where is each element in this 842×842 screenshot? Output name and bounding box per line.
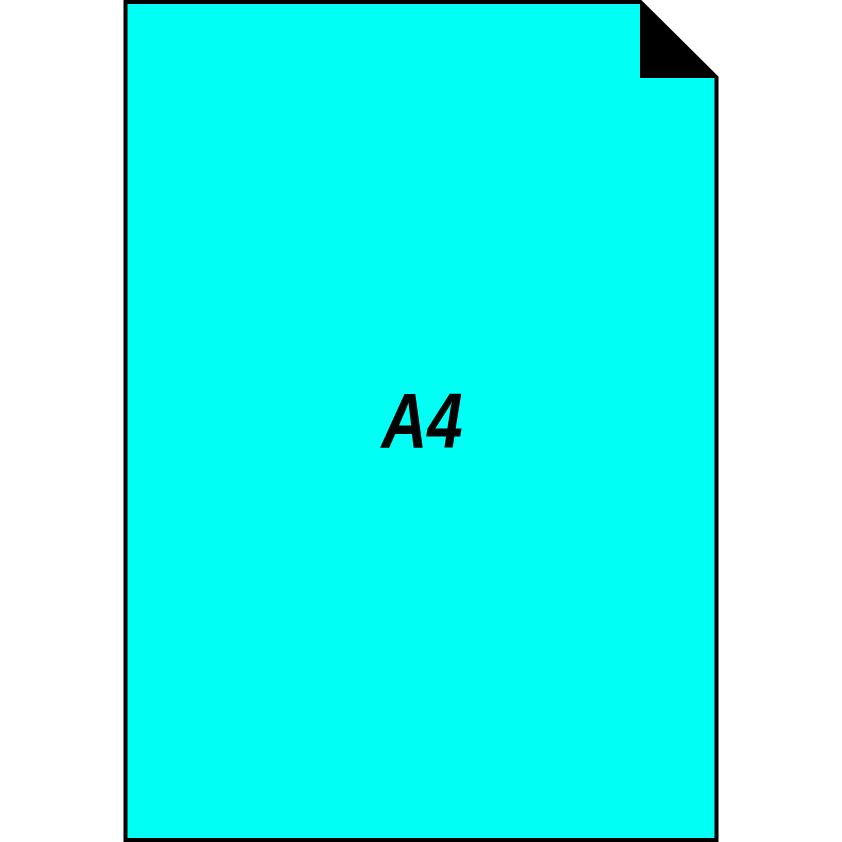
- svg-text:A4: A4: [380, 378, 463, 465]
